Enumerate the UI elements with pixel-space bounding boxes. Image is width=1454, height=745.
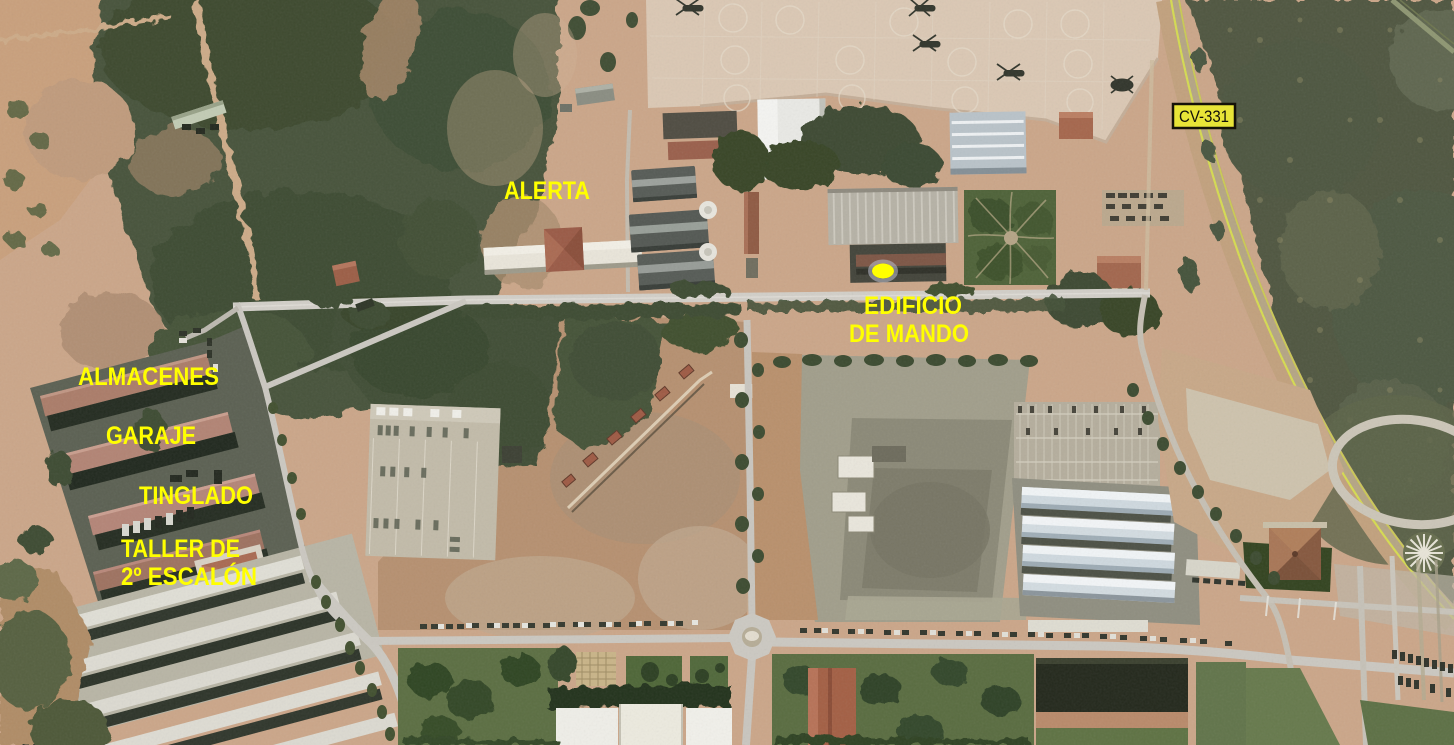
svg-text:TINGLADO: TINGLADO	[139, 482, 253, 510]
svg-text:ALMACENES: ALMACENES	[78, 363, 219, 391]
svg-text:DE MANDO: DE MANDO	[849, 320, 969, 348]
svg-text:2º ESCALÓN: 2º ESCALÓN	[121, 561, 257, 591]
svg-text:GARAJE: GARAJE	[106, 422, 196, 450]
svg-text:ALERTA: ALERTA	[504, 177, 590, 205]
svg-text:EDIFICIO: EDIFICIO	[864, 292, 962, 320]
svg-text:TALLER DE: TALLER DE	[121, 535, 240, 563]
svg-text:CV-331: CV-331	[1179, 107, 1229, 126]
